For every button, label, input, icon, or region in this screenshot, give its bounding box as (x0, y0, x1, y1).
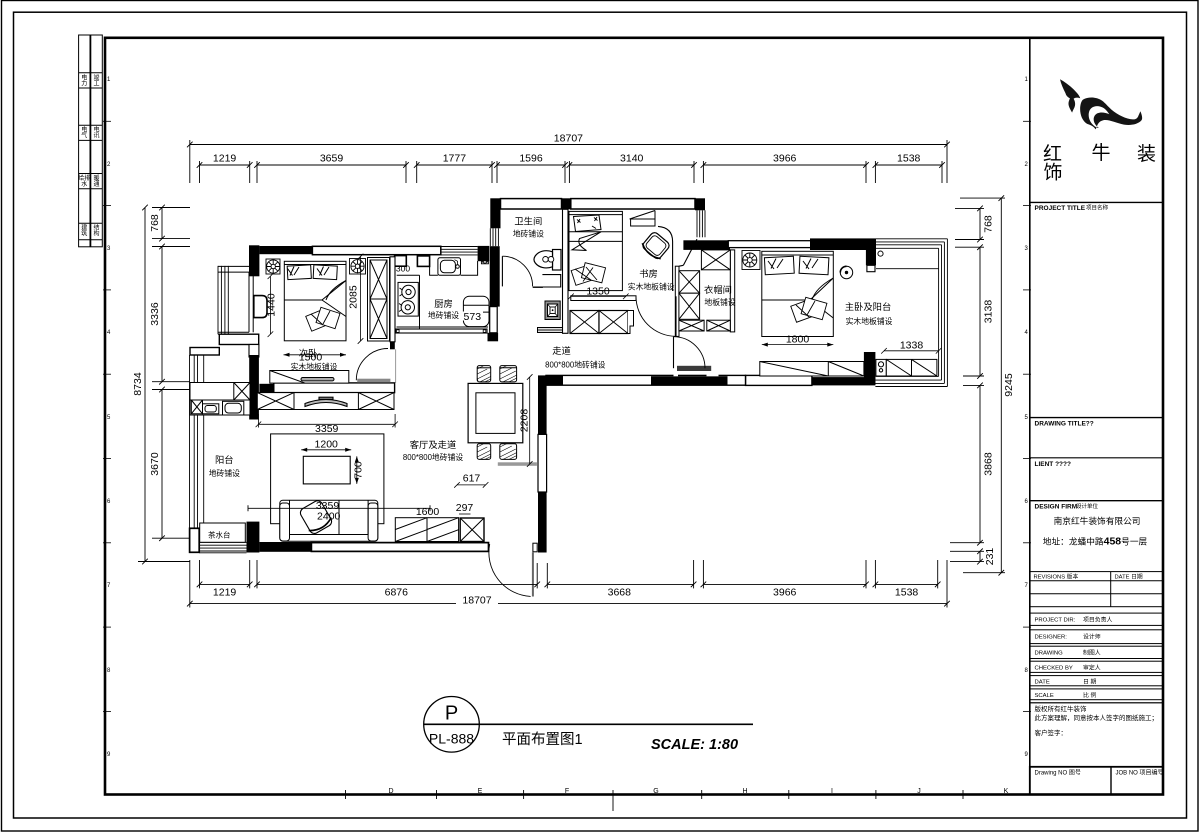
svg-text:1440: 1440 (266, 293, 278, 317)
svg-text:3868: 3868 (983, 452, 995, 476)
svg-text:此方案理解，同意按本人签字的图纸施工；: 此方案理解，同意按本人签字的图纸施工； (1035, 713, 1159, 722)
svg-text:3336: 3336 (149, 302, 161, 326)
svg-text:1538: 1538 (895, 587, 919, 599)
svg-text:卫生间: 卫生间 (514, 216, 542, 227)
svg-text:18707: 18707 (554, 133, 583, 145)
svg-text:地板铺设: 地板铺设 (704, 297, 735, 307)
svg-text:厨房: 厨房 (434, 298, 453, 309)
svg-text:地砖铺设: 地砖铺设 (209, 468, 240, 478)
svg-text:审定人: 审定人 (1083, 664, 1101, 672)
svg-text:实木地板铺设: 实木地板铺设 (291, 362, 338, 372)
svg-text:1777: 1777 (443, 153, 467, 165)
svg-text:3966: 3966 (773, 153, 797, 165)
svg-text:18707: 18707 (462, 594, 491, 606)
svg-text:暖: 暖 (93, 174, 99, 182)
svg-text:给排: 给排 (78, 174, 90, 182)
svg-text:讯: 讯 (93, 132, 99, 140)
svg-text:制图人: 制图人 (1083, 649, 1101, 657)
svg-text:设计师: 设计师 (1083, 633, 1101, 641)
svg-text:SCALE: SCALE (1035, 693, 1054, 699)
svg-text:800*800地砖铺设: 800*800地砖铺设 (403, 452, 463, 462)
svg-text:2085: 2085 (348, 285, 360, 309)
svg-text:筑: 筑 (81, 230, 87, 238)
svg-text:衣帽间: 衣帽间 (704, 284, 732, 295)
svg-text:K: K (1004, 788, 1009, 795)
svg-text:PL-888: PL-888 (429, 731, 474, 747)
svg-text:700: 700 (352, 461, 364, 479)
svg-text:比 例: 比 例 (1083, 691, 1097, 699)
svg-text:茶水台: 茶水台 (208, 530, 231, 540)
svg-text:768: 768 (983, 215, 995, 233)
svg-text:1538: 1538 (897, 153, 921, 165)
svg-text:地址：龙蟠中路458号一层: 地址：龙蟠中路458号一层 (1043, 536, 1148, 548)
svg-text:DESIGNER:: DESIGNER: (1035, 635, 1068, 641)
svg-text:电: 电 (81, 74, 87, 82)
svg-text:DATE 日期: DATE 日期 (1115, 573, 1143, 580)
svg-text:建: 建 (81, 224, 87, 232)
svg-text:饰: 饰 (1044, 162, 1063, 184)
svg-text:装: 装 (1137, 143, 1156, 165)
svg-text:DRAWING TITLE??: DRAWING TITLE?? (1035, 421, 1094, 428)
svg-text:617: 617 (463, 473, 481, 485)
svg-text:结: 结 (93, 224, 99, 232)
svg-text:573: 573 (464, 311, 482, 323)
svg-text:电: 电 (81, 126, 87, 134)
svg-text:牛: 牛 (1092, 142, 1111, 164)
svg-text:E: E (478, 788, 483, 795)
svg-text:LIENT ????: LIENT ???? (1035, 461, 1071, 468)
svg-text:F: F (565, 788, 569, 795)
svg-text:3138: 3138 (983, 300, 995, 324)
svg-text:3659: 3659 (320, 153, 344, 165)
svg-text:1600: 1600 (416, 506, 440, 518)
svg-text:300: 300 (396, 264, 410, 274)
svg-text:CHECKED BY: CHECKED BY (1035, 666, 1073, 672)
svg-text:版权所有红牛装饰: 版权所有红牛装饰 (1035, 704, 1088, 713)
svg-text:客厅及走道: 客厅及走道 (410, 439, 457, 450)
svg-text:3668: 3668 (608, 587, 632, 599)
svg-text:1596: 1596 (519, 153, 543, 165)
svg-text:实木地板铺设: 实木地板铺设 (628, 281, 675, 291)
svg-text:项目负责人: 项目负责人 (1083, 616, 1113, 624)
svg-text:水: 水 (81, 180, 87, 188)
svg-text:3140: 3140 (620, 153, 644, 165)
svg-text:G: G (653, 788, 658, 795)
svg-text:地砖铺设: 地砖铺设 (428, 310, 459, 320)
svg-text:日 期: 日 期 (1083, 677, 1097, 685)
svg-text:9245: 9245 (1003, 373, 1015, 397)
svg-text:书房: 书房 (639, 268, 658, 279)
svg-text:南京红牛装饰有限公司: 南京红牛装饰有限公司 (1054, 515, 1141, 526)
svg-text:力: 力 (81, 80, 87, 88)
svg-text:设计单位: 设计单位 (1076, 502, 1099, 510)
svg-text:DESIGN FIRM: DESIGN FIRM (1035, 504, 1078, 511)
svg-text:768: 768 (149, 214, 161, 232)
svg-text:REVISIONS 版本: REVISIONS 版本 (1034, 572, 1079, 580)
svg-text:H: H (742, 788, 747, 795)
svg-text:I: I (831, 788, 833, 795)
svg-text:231: 231 (984, 548, 996, 566)
svg-text:3966: 3966 (773, 587, 797, 599)
svg-text:800*800地砖铺设: 800*800地砖铺设 (545, 359, 605, 369)
svg-text:构: 构 (93, 230, 99, 238)
svg-text:JOB NO 项目编号: JOB NO 项目编号 (1116, 769, 1164, 777)
svg-text:DRAWING: DRAWING (1035, 651, 1064, 657)
svg-text:次卧: 次卧 (299, 348, 318, 359)
svg-text:实木地板铺设: 实木地板铺设 (846, 316, 893, 326)
svg-text:J: J (917, 788, 921, 795)
svg-text:P: P (445, 703, 458, 725)
svg-text:平面布置图1: 平面布置图1 (502, 731, 583, 748)
svg-text:6876: 6876 (385, 587, 409, 599)
svg-text:3359: 3359 (315, 423, 339, 435)
svg-text:D: D (388, 788, 393, 795)
svg-text:Drawing NO 图号: Drawing NO 图号 (1035, 770, 1081, 777)
svg-text:2400: 2400 (317, 511, 341, 523)
svg-text:SCALE: 1:80: SCALE: 1:80 (651, 737, 738, 753)
svg-text:1350: 1350 (586, 285, 610, 297)
svg-text:8734: 8734 (132, 372, 144, 396)
svg-text:1200: 1200 (315, 438, 339, 450)
svg-text:1219: 1219 (213, 153, 237, 165)
svg-text:2208: 2208 (519, 409, 531, 433)
svg-text:1338: 1338 (900, 340, 924, 352)
svg-text:297: 297 (456, 502, 474, 514)
svg-text:项目名称: 项目名称 (1086, 204, 1109, 212)
svg-text:3670: 3670 (149, 452, 161, 476)
svg-text:1800: 1800 (786, 333, 810, 345)
svg-text:工: 工 (93, 81, 99, 88)
svg-text:通: 通 (93, 180, 99, 188)
svg-text:主卧及阳台: 主卧及阳台 (845, 301, 892, 312)
svg-text:电: 电 (93, 126, 99, 134)
svg-text:客户签字：: 客户签字： (1035, 728, 1068, 737)
svg-text:阳台: 阳台 (215, 454, 234, 465)
svg-text:地砖铺设: 地砖铺设 (513, 229, 544, 239)
svg-text:走道: 走道 (552, 345, 571, 356)
svg-text:竣: 竣 (93, 74, 99, 82)
svg-text:PROJECT DIR:: PROJECT DIR: (1035, 618, 1076, 624)
svg-text:DATE: DATE (1035, 679, 1050, 685)
svg-text:1219: 1219 (213, 587, 237, 599)
svg-text:气: 气 (81, 132, 87, 140)
svg-text:PROJECT TITLE: PROJECT TITLE (1035, 205, 1086, 212)
